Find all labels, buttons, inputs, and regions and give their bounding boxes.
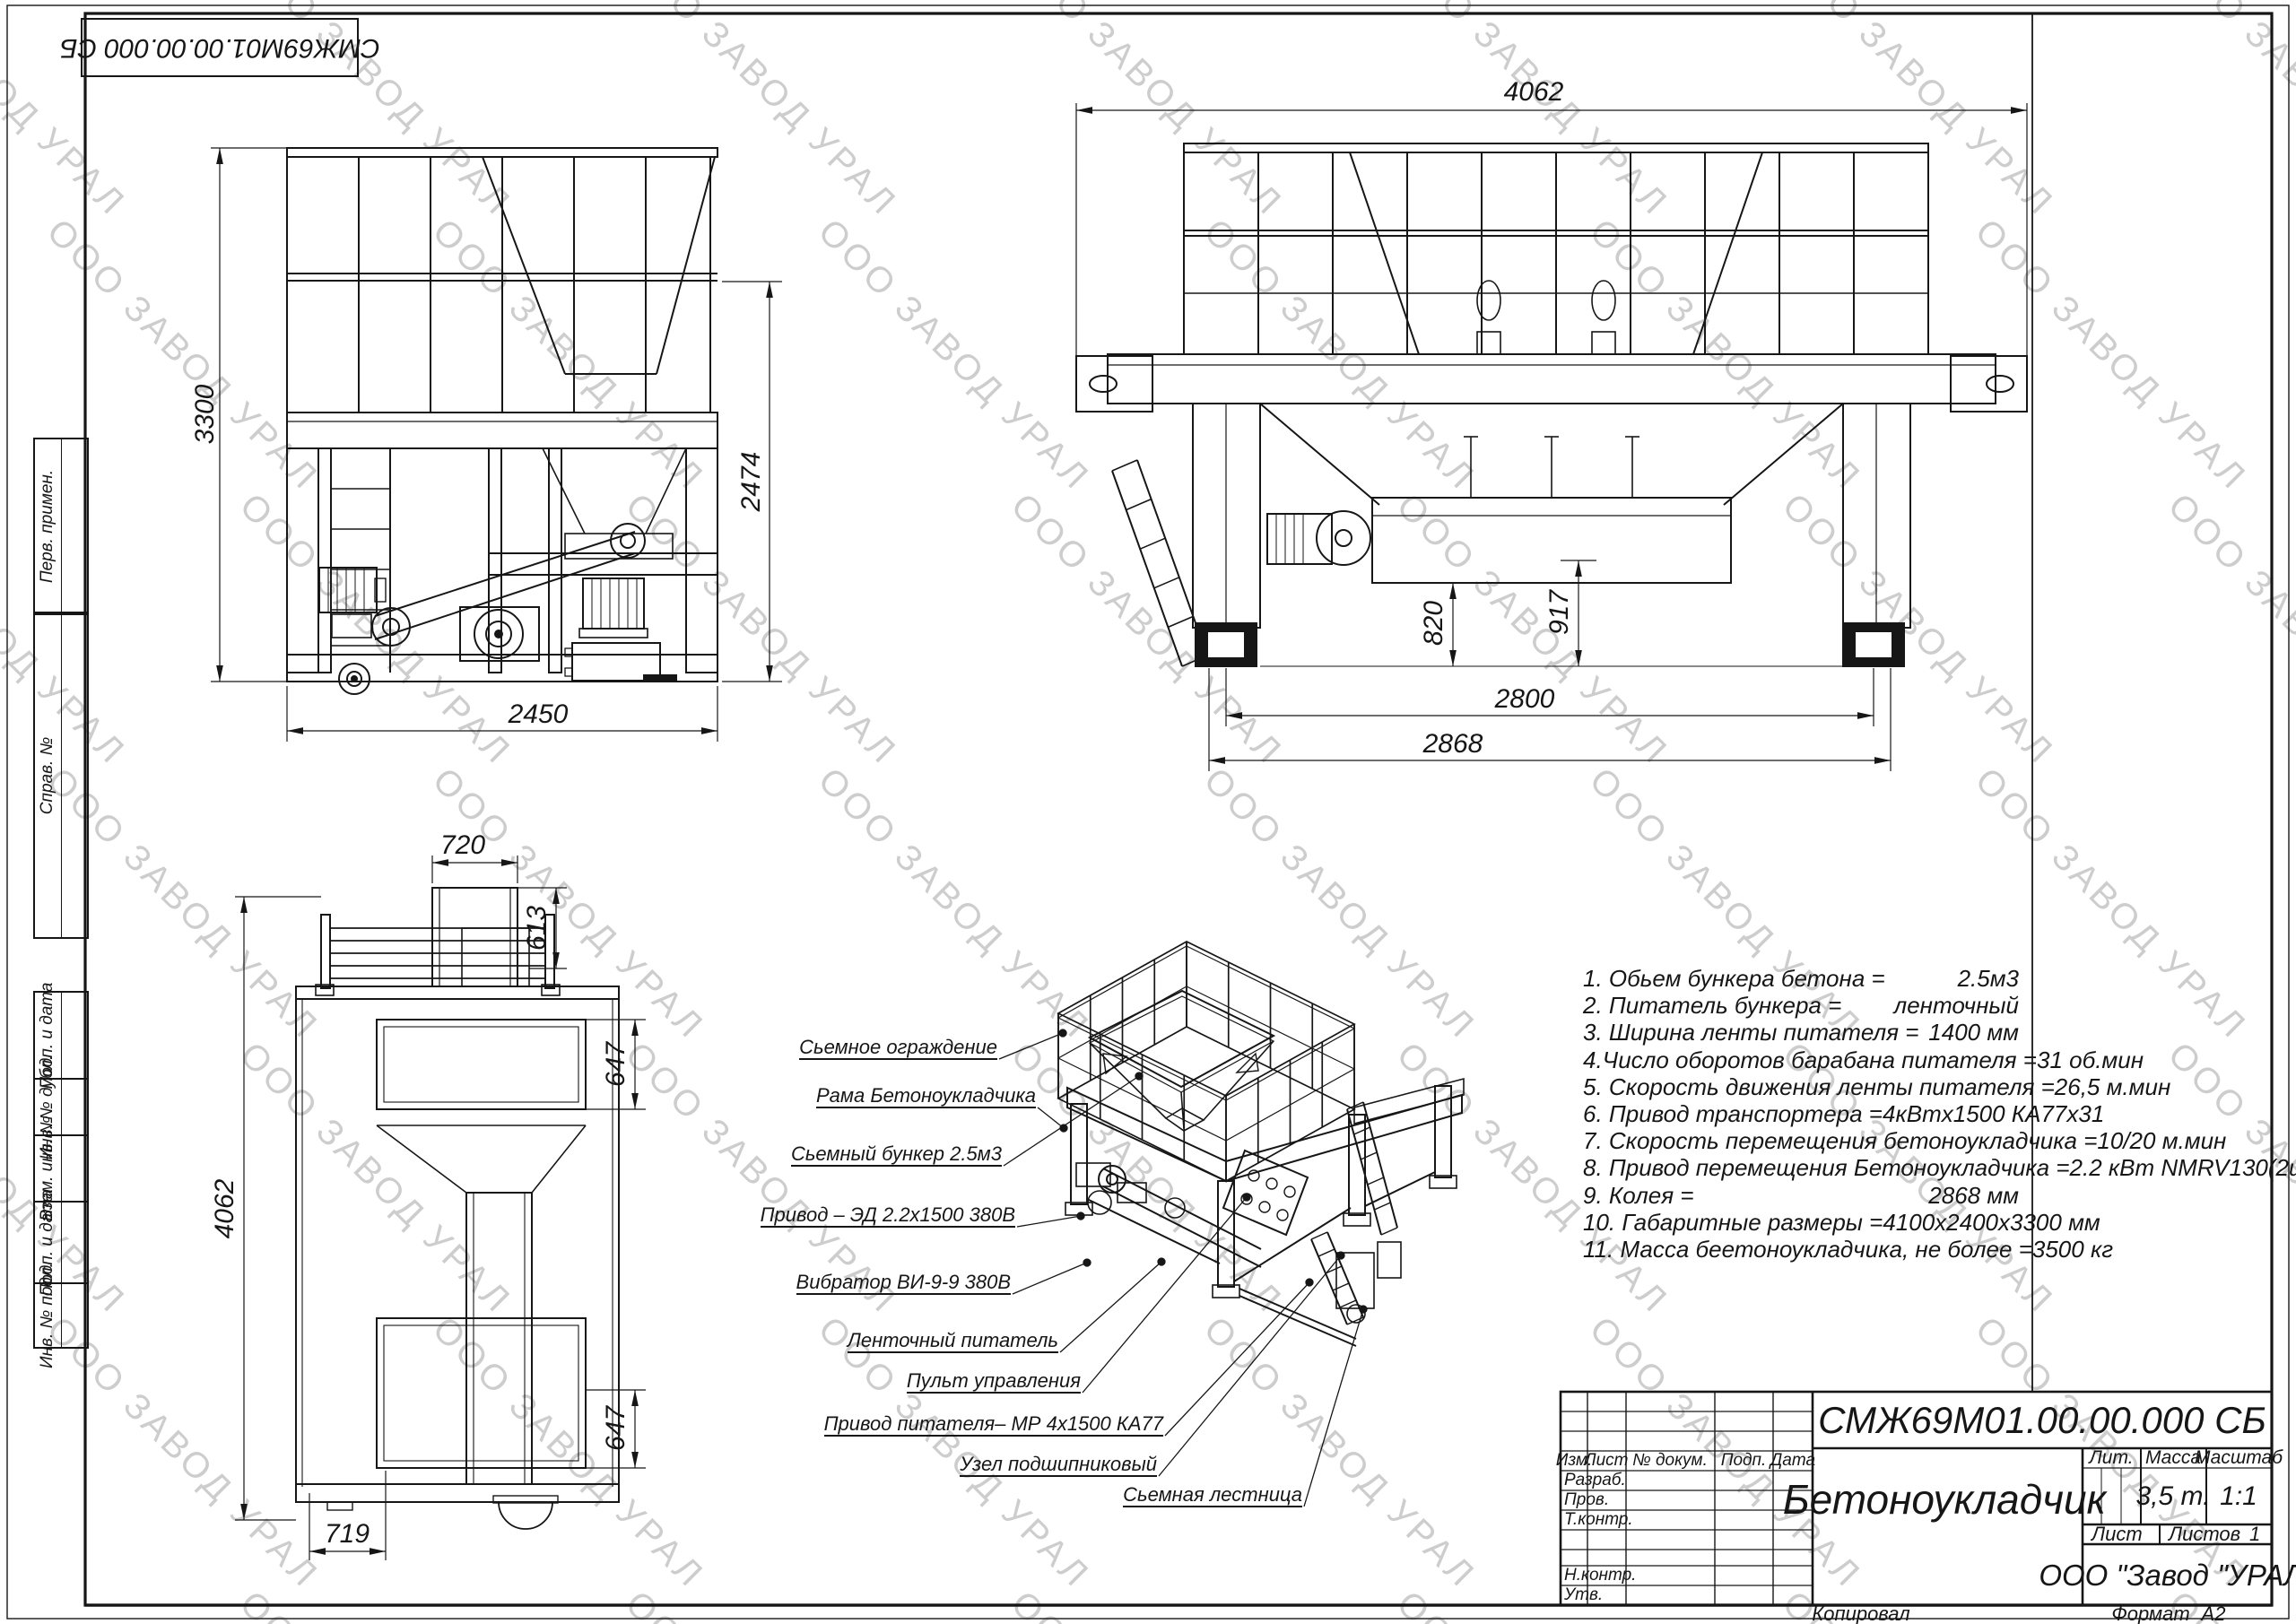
- title-block: СМЖ69М01.00.00.000 СБ Бетоноукладчик ООО…: [0, 0, 2296, 1624]
- title-block-label: Пров.: [1564, 1490, 1609, 1510]
- title-sheets-label: Листов: [2169, 1523, 2240, 1546]
- title-doc-number: СМЖ69М01.00.00.000 СБ: [1818, 1399, 2266, 1442]
- title-company: ООО "Завод "УРАЛ": [2039, 1559, 2296, 1593]
- margin-label: Справ. №: [38, 736, 57, 813]
- margin-box-perv-primen: Перв. примен.: [33, 438, 89, 615]
- title-block-label: Т.контр.: [1564, 1510, 1633, 1530]
- corner-stamp-text: СМЖ69М01.00.00.000 СБ: [60, 32, 380, 63]
- footer-format-label: Формат: [2111, 1602, 2189, 1624]
- title-block-label: Подп.: [1721, 1451, 1767, 1471]
- margin-label: Перв. примен.: [38, 470, 57, 583]
- title-mass-label: Масса: [2145, 1447, 2201, 1469]
- title-block-label: Утв.: [1564, 1585, 1603, 1605]
- title-product-name: Бетоноукладчик: [1783, 1475, 2107, 1524]
- margin-label: Инв. № подл.: [38, 1263, 57, 1368]
- title-block-label: Дата: [1770, 1451, 1815, 1471]
- title-block-label: № докум.: [1632, 1451, 1708, 1471]
- title-block-label: Разраб.: [1564, 1471, 1626, 1490]
- title-sheet-label: Лист: [2092, 1523, 2143, 1546]
- margin-box-inv-podl: Инв. № подл.: [33, 1282, 89, 1349]
- margin-box-sprav-no: Справ. №: [33, 612, 89, 939]
- title-scale-value: 1:1: [2220, 1481, 2257, 1512]
- drawing-sheet: ООО ЗАВОД УРАЛООО ЗАВОД УРАЛООО ЗАВОД УР…: [0, 0, 2296, 1624]
- title-scale-label: Масштаб: [2195, 1447, 2283, 1469]
- title-block-label: Н.контр.: [1564, 1566, 1636, 1585]
- footer-copied-label: Копировал: [1812, 1602, 1909, 1624]
- footer-format-value: А2: [2202, 1602, 2226, 1624]
- title-sheets-value: 1: [2249, 1523, 2260, 1546]
- title-lit-label: Лит.: [2089, 1447, 2133, 1469]
- title-block-label: Лист: [1585, 1451, 1629, 1471]
- title-mass-value: 3,5 т.: [2135, 1481, 2210, 1512]
- corner-stamp: СМЖ69М01.00.00.000 СБ: [81, 18, 359, 77]
